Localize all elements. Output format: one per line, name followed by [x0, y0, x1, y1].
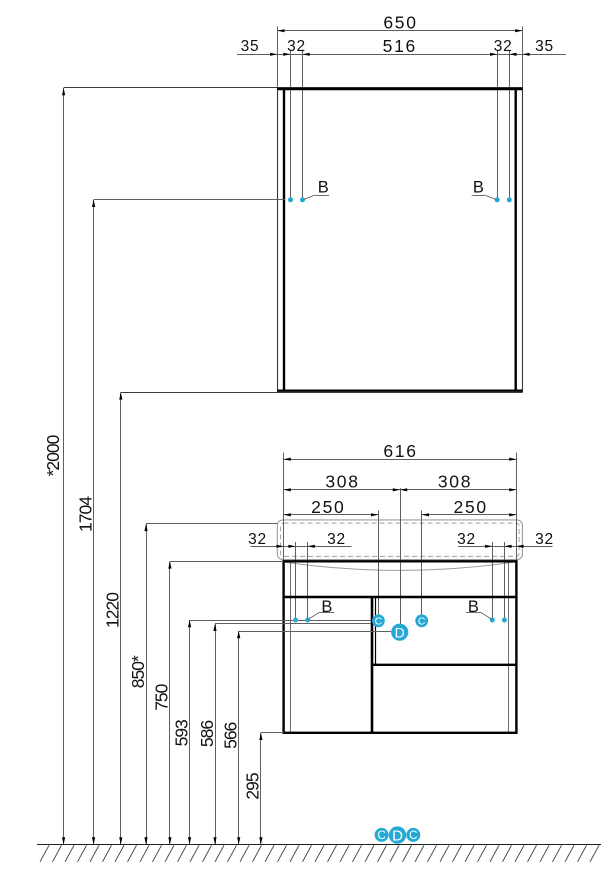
svg-text:B: B	[473, 178, 484, 196]
svg-text:C: C	[409, 830, 417, 842]
svg-text:32: 32	[494, 38, 513, 55]
svg-text:250: 250	[454, 497, 488, 517]
svg-text:650: 650	[383, 13, 417, 33]
svg-text:566: 566	[221, 722, 241, 748]
svg-text:850*: 850*	[128, 655, 148, 688]
svg-text:C: C	[418, 616, 426, 628]
svg-text:1220: 1220	[103, 592, 123, 628]
svg-text:32: 32	[457, 531, 476, 548]
svg-text:B: B	[318, 178, 329, 196]
svg-text:1704: 1704	[75, 496, 95, 532]
svg-text:32: 32	[248, 531, 267, 548]
svg-text:250: 250	[311, 497, 345, 517]
svg-text:35: 35	[535, 38, 554, 55]
svg-text:750: 750	[152, 683, 172, 710]
svg-text:308: 308	[325, 472, 359, 492]
svg-text:32: 32	[287, 38, 306, 55]
svg-text:C: C	[375, 616, 383, 628]
svg-text:B: B	[468, 598, 479, 616]
svg-text:D: D	[392, 828, 403, 845]
svg-text:C: C	[377, 830, 385, 842]
svg-text:32: 32	[327, 531, 346, 548]
svg-text:516: 516	[383, 36, 417, 56]
svg-text:B: B	[321, 598, 332, 616]
svg-text:32: 32	[535, 531, 554, 548]
svg-text:D: D	[395, 624, 405, 640]
svg-text:616: 616	[383, 441, 417, 461]
svg-text:295: 295	[243, 773, 263, 799]
svg-text:308: 308	[438, 472, 472, 492]
svg-text:35: 35	[241, 38, 260, 55]
svg-text:*2000: *2000	[43, 434, 63, 476]
svg-text:586: 586	[197, 721, 217, 747]
svg-text:593: 593	[171, 720, 191, 746]
